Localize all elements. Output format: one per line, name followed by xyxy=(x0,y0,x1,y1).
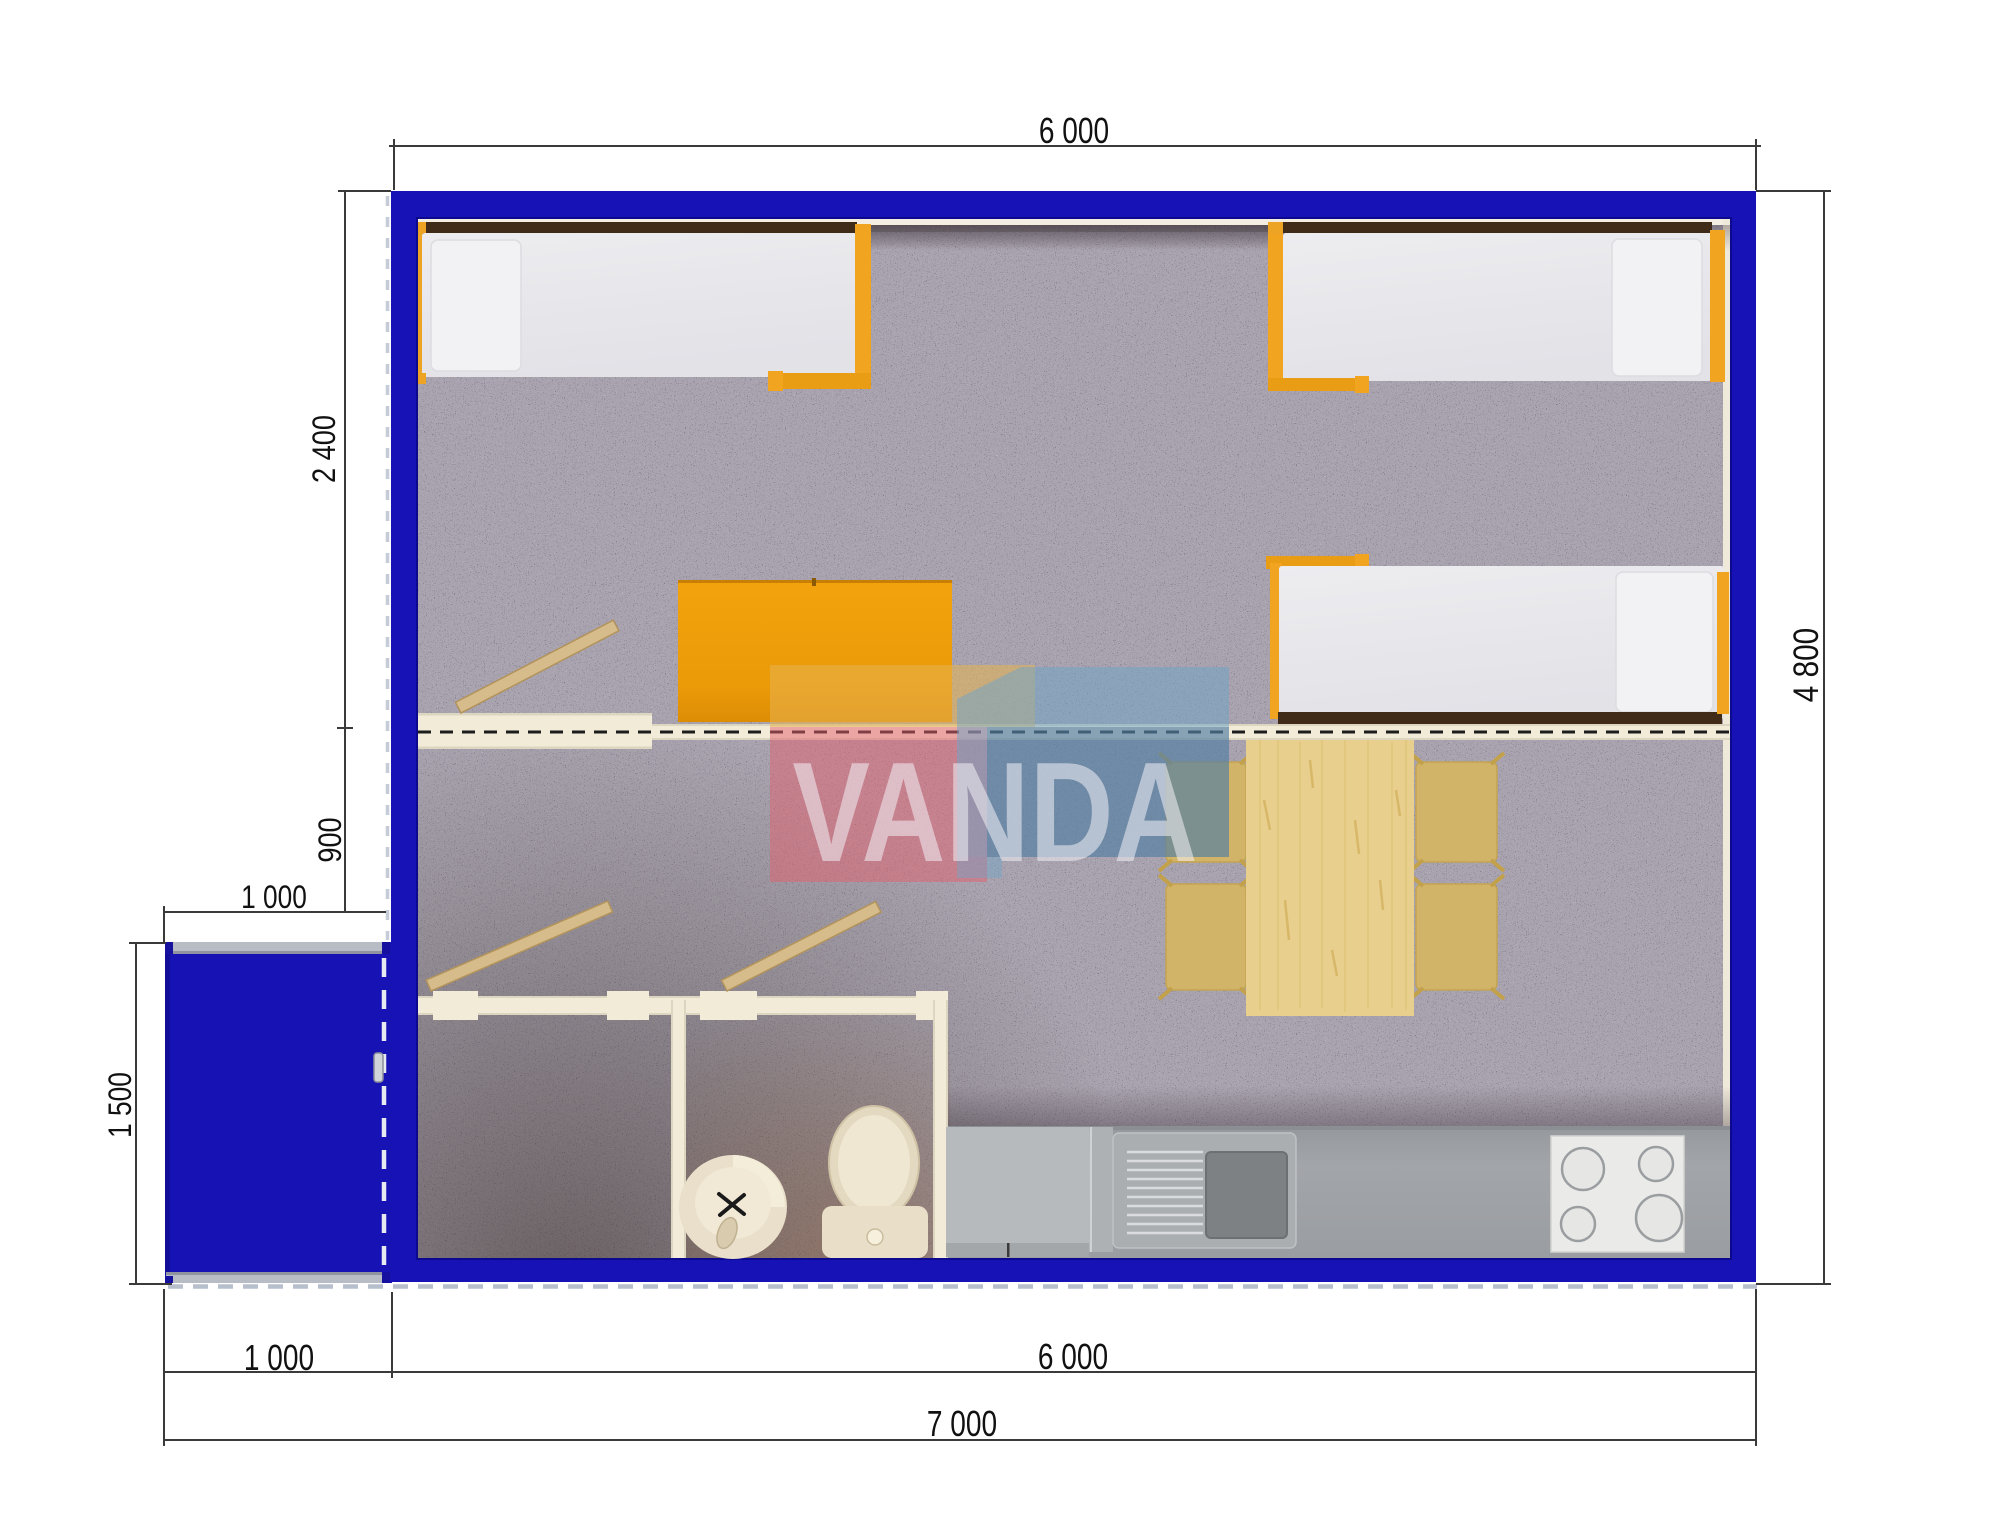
svg-text:4 800: 4 800 xyxy=(1787,628,1826,702)
svg-text:1 000: 1 000 xyxy=(241,881,307,916)
svg-text:7 000: 7 000 xyxy=(927,1404,997,1444)
svg-text:6 000: 6 000 xyxy=(1038,1337,1108,1377)
svg-text:1 000: 1 000 xyxy=(244,1338,314,1378)
svg-text:2 400: 2 400 xyxy=(307,415,343,483)
svg-text:VANDA: VANDA xyxy=(792,732,1197,892)
svg-text:900: 900 xyxy=(313,817,349,862)
svg-text:6 000: 6 000 xyxy=(1039,111,1109,151)
svg-text:1 500: 1 500 xyxy=(104,1072,139,1138)
